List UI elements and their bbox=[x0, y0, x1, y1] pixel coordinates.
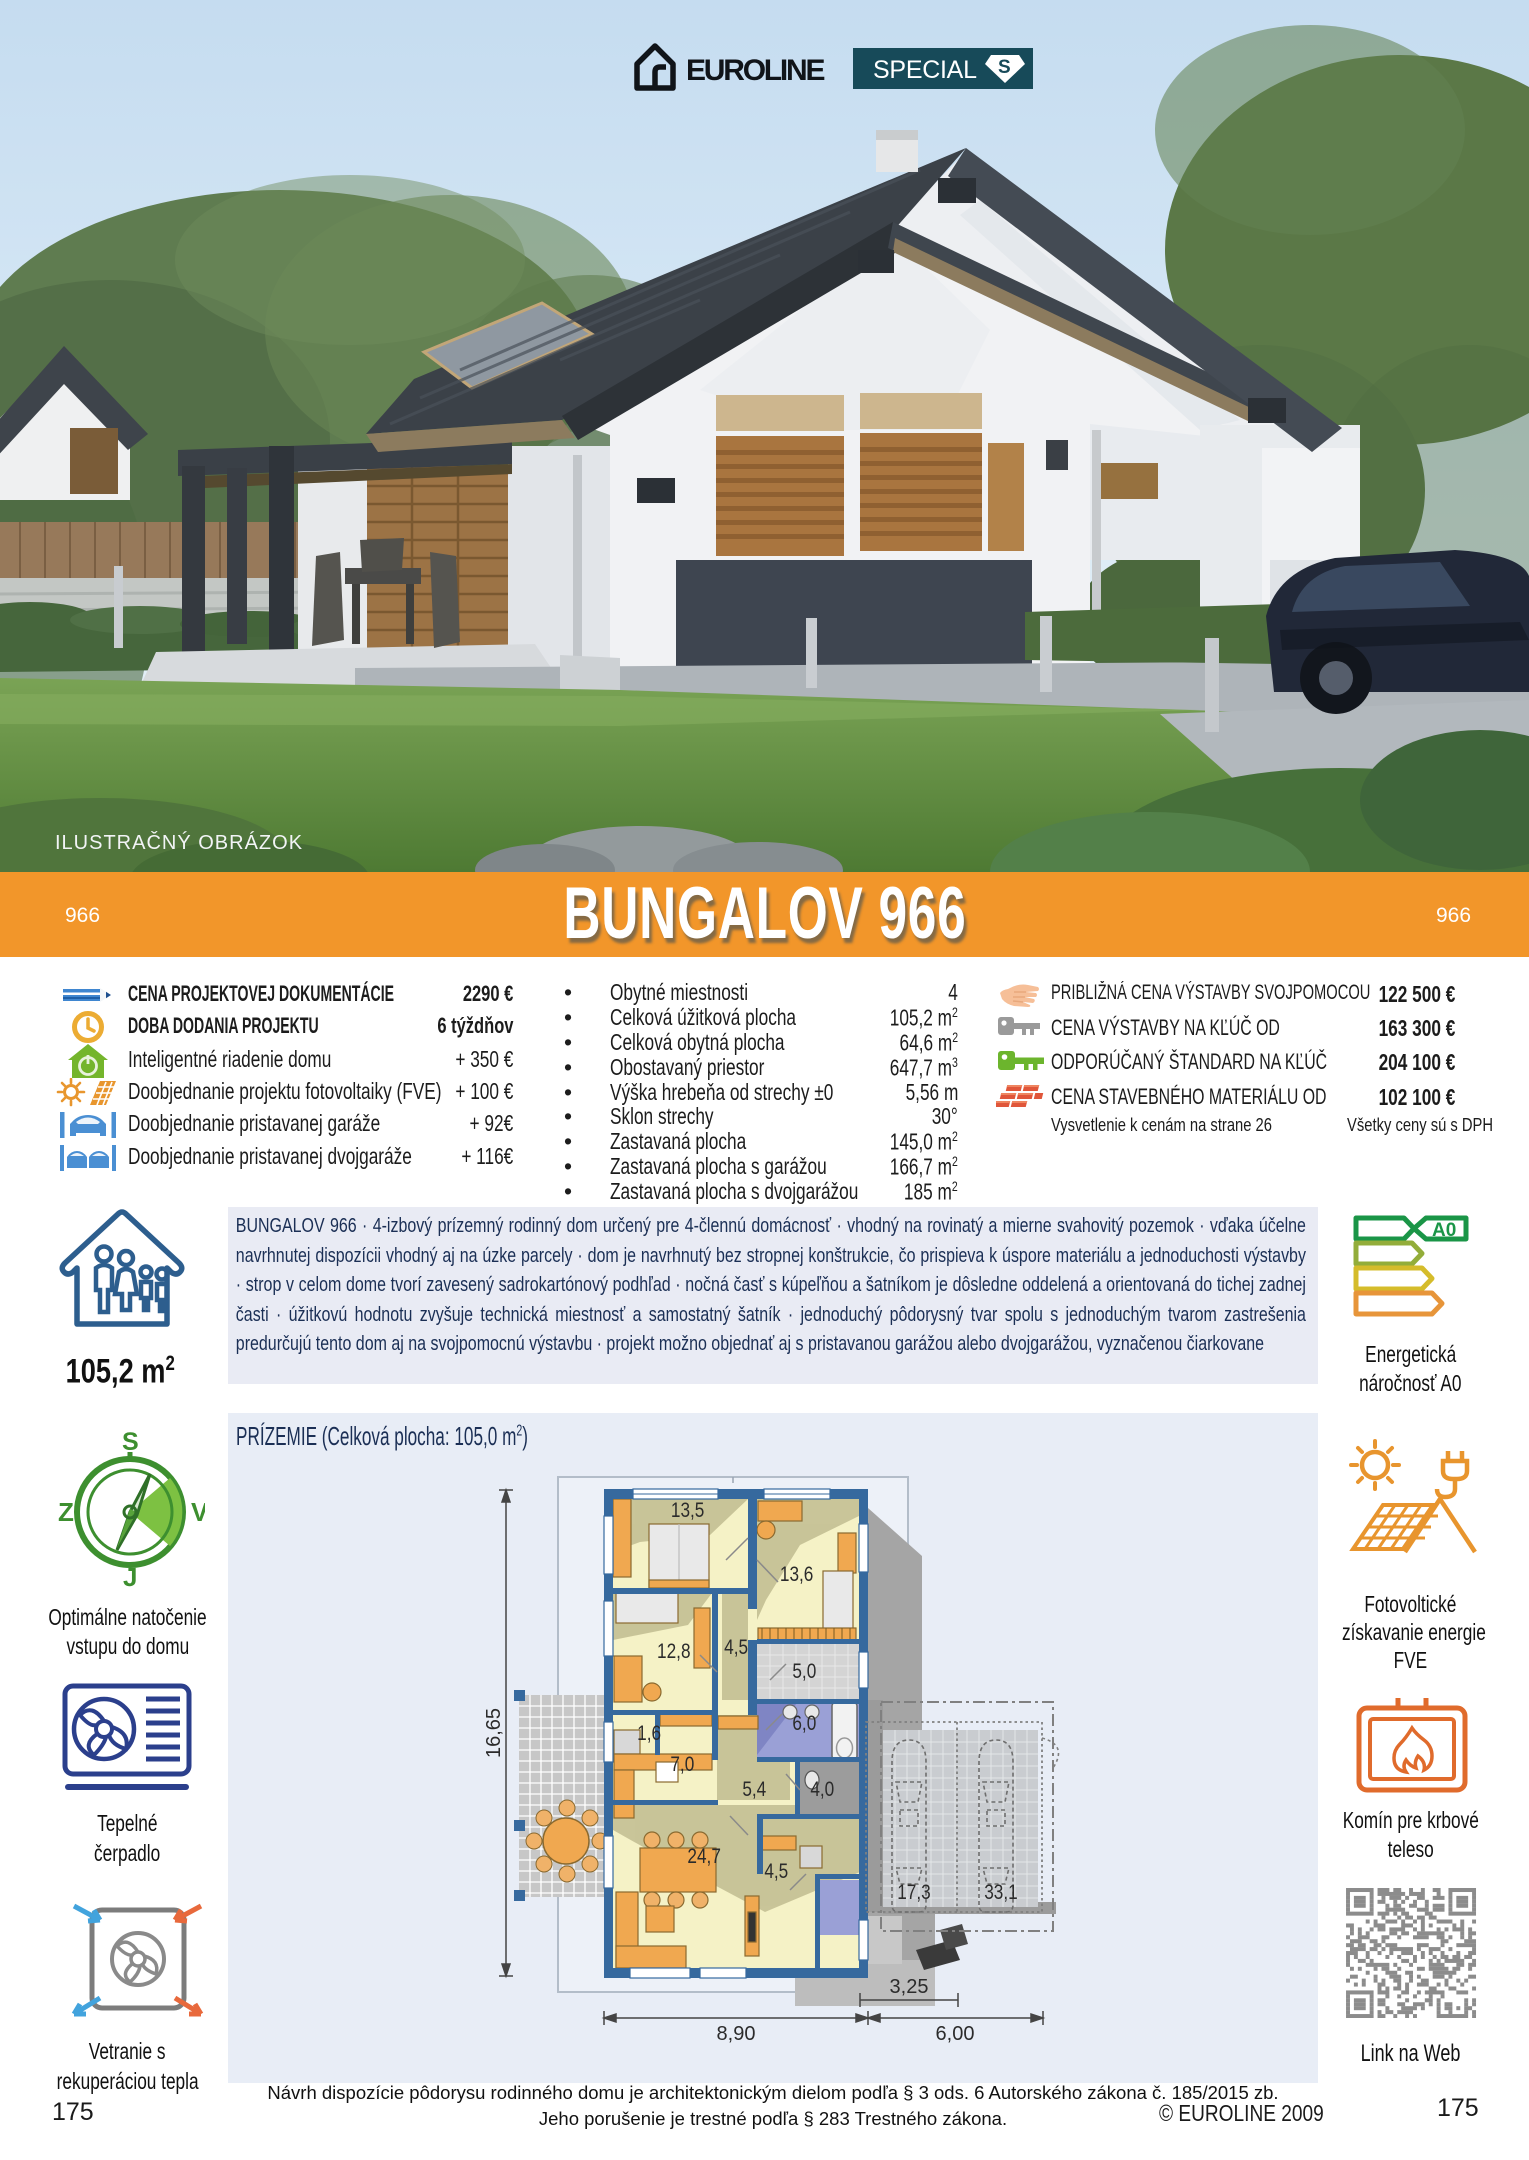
svg-text:EUROLINE: EUROLINE bbox=[686, 54, 826, 87]
svg-text:3,25: 3,25 bbox=[890, 1976, 929, 1998]
svg-text:13,5: 13,5 bbox=[671, 1500, 705, 1523]
svg-text:4,5: 4,5 bbox=[724, 1637, 748, 1660]
svg-text:1,6: 1,6 bbox=[637, 1723, 661, 1746]
svg-text:4,5: 4,5 bbox=[764, 1861, 788, 1884]
svg-text:24,7: 24,7 bbox=[687, 1846, 721, 1869]
svg-text:12,8: 12,8 bbox=[657, 1641, 691, 1664]
svg-text:33,1: 33,1 bbox=[984, 1882, 1018, 1905]
svg-text:5,0: 5,0 bbox=[792, 1661, 816, 1684]
svg-text:V: V bbox=[191, 1497, 205, 1527]
svg-text:J: J bbox=[123, 1562, 137, 1587]
svg-text:A0: A0 bbox=[1432, 1220, 1456, 1241]
svg-text:6,0: 6,0 bbox=[792, 1713, 816, 1736]
svg-text:Z: Z bbox=[58, 1497, 74, 1527]
svg-text:S: S bbox=[998, 57, 1011, 78]
svg-text:8,90: 8,90 bbox=[717, 2023, 756, 2045]
svg-text:16,65: 16,65 bbox=[483, 1708, 505, 1758]
svg-text:7,0: 7,0 bbox=[670, 1754, 694, 1777]
svg-text:5,4: 5,4 bbox=[742, 1779, 766, 1802]
svg-text:13,6: 13,6 bbox=[780, 1564, 814, 1587]
svg-text:S: S bbox=[122, 1432, 139, 1456]
svg-text:4,0: 4,0 bbox=[810, 1779, 834, 1802]
svg-text:17,3: 17,3 bbox=[897, 1882, 931, 1905]
svg-text:SPECIAL: SPECIAL bbox=[873, 56, 978, 84]
svg-text:6,00: 6,00 bbox=[936, 2023, 975, 2045]
